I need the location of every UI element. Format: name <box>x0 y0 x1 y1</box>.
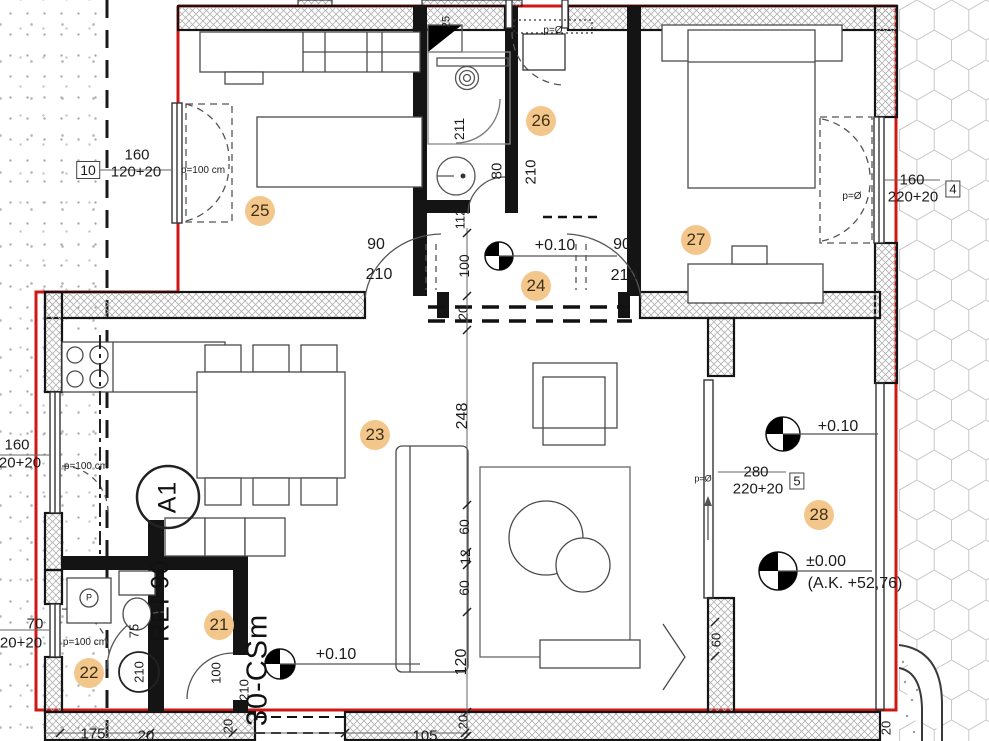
dim-label: p=100 cm <box>64 462 108 472</box>
dim-label: 60 <box>457 580 471 596</box>
dim-label: 160 <box>124 148 149 163</box>
dim-label: A1 <box>156 481 181 514</box>
dim-label: 20 <box>138 729 155 741</box>
room-badge-28: 28 <box>804 500 834 530</box>
dim-label: 90 <box>613 237 631 253</box>
dim-label: 100 <box>457 254 471 277</box>
dim-label: 175 <box>80 727 105 741</box>
dim-label: +0.10 <box>818 419 858 435</box>
dim-label: 160 <box>4 438 29 453</box>
dim-label: 210 <box>133 661 146 683</box>
annotation-layer: 10160120+20p=100 cm21125p=Ø8021011216022… <box>0 0 989 741</box>
dim-label: 20 <box>457 306 470 320</box>
dim-label: 248 <box>455 403 471 430</box>
dim-label: p=Ø <box>842 192 861 202</box>
dim-label: 30-CSm <box>244 614 273 726</box>
room-badge-25: 25 <box>245 196 275 226</box>
dim-label: 20 <box>222 719 235 733</box>
room-badge-24: 24 <box>521 271 551 301</box>
dim-label: 210 <box>366 267 393 283</box>
dim-label: 160 <box>899 173 924 188</box>
dim-label: 20+20 <box>0 636 42 651</box>
dim-label: 20 <box>457 715 470 729</box>
dim-label: 10 <box>76 161 100 179</box>
room-badge-27: 27 <box>681 225 711 255</box>
dim-label: 70 <box>27 617 44 632</box>
floorplan-page: 10160120+20p=100 cm21125p=Ø8021011216022… <box>0 0 989 741</box>
dim-label: 4 <box>945 181 960 198</box>
dim-label: 60 <box>457 519 471 535</box>
dim-label: 75 <box>128 624 141 638</box>
dim-label: (A.K. +52,76) <box>808 576 903 592</box>
dim-label: 20+20 <box>0 456 41 471</box>
room-badge-23: 23 <box>360 420 390 450</box>
dim-label: 5 <box>789 473 804 490</box>
dim-label: 25 <box>442 16 453 28</box>
dim-label: p=100 cm <box>63 638 107 648</box>
dim-label: 112 <box>454 209 467 230</box>
dim-label: 90 <box>367 237 385 253</box>
dim-label: 211 <box>452 118 466 140</box>
dim-label: 100 <box>210 662 223 684</box>
room-badge-22: 22 <box>74 658 104 688</box>
dim-label: +0.10 <box>316 647 356 663</box>
dim-label: 20 <box>880 721 893 735</box>
dim-label: 120+20 <box>111 165 161 180</box>
dim-label: 60 <box>710 633 723 647</box>
dim-label: 220+20 <box>733 482 783 497</box>
dim-label: 80 <box>490 163 505 180</box>
dim-label: ±0.00 <box>806 554 846 570</box>
dim-label: 120 <box>454 649 470 676</box>
dim-label: 210 <box>524 159 539 184</box>
dim-label: 105 <box>412 729 437 741</box>
dim-label: 220+20 <box>888 190 938 205</box>
dim-label: p=Ø <box>694 475 711 484</box>
dim-label: 280 <box>743 465 768 480</box>
dim-label: REI 90- <box>149 550 174 642</box>
dim-label: 12 <box>458 549 472 565</box>
dim-label: p=Ø <box>543 26 562 36</box>
dim-label: p=100 cm <box>181 166 225 176</box>
dim-label: 210 <box>611 268 638 284</box>
room-badge-21: 21 <box>204 610 234 640</box>
dim-label: P <box>86 594 92 603</box>
dim-label: +0.10 <box>535 238 575 254</box>
room-badge-26: 26 <box>526 106 556 136</box>
